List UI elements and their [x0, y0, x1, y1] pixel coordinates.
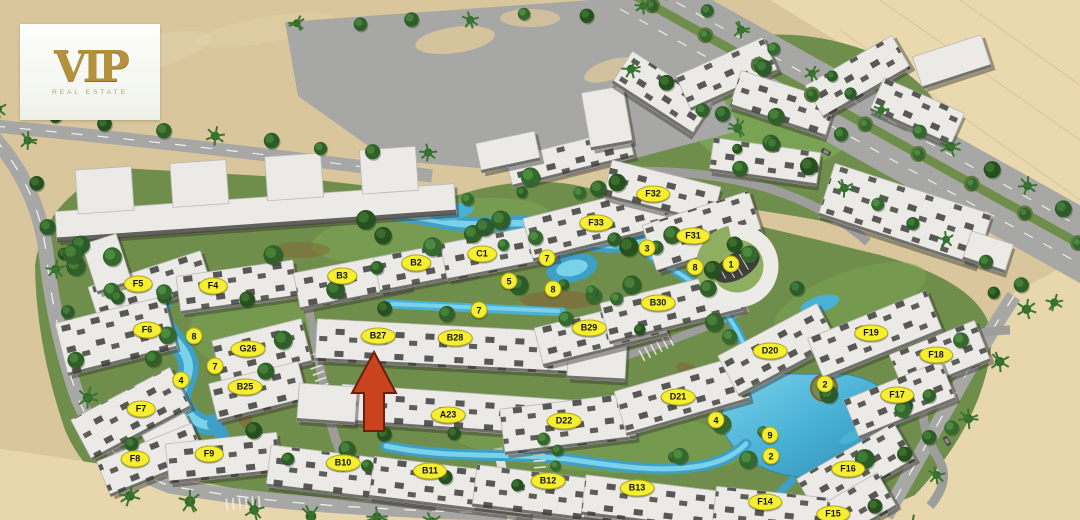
- amenity-marker-3: 3: [639, 240, 656, 257]
- amenity-marker-8: 8: [186, 328, 203, 345]
- building-label-F17: F17: [880, 387, 914, 404]
- amenity-marker-7: 7: [471, 302, 488, 319]
- building-label-D22: D22: [547, 413, 582, 430]
- building-label-F18: F18: [919, 347, 953, 364]
- building-label-F4: F4: [199, 278, 228, 295]
- building-label-B29: B29: [572, 320, 607, 337]
- vip-logo-monogram: VIP: [54, 48, 126, 86]
- building-label-B25: B25: [228, 379, 263, 396]
- amenity-marker-7: 7: [207, 358, 224, 375]
- building-label-F19: F19: [854, 325, 888, 342]
- building-label-F16: F16: [831, 461, 865, 478]
- building-label-F5: F5: [124, 276, 153, 293]
- developer-logo: VIP REAL ESTATE: [20, 24, 160, 120]
- building-label-B13: B13: [620, 480, 655, 497]
- amenity-marker-4: 4: [708, 412, 725, 429]
- building-label-B28: B28: [438, 330, 473, 347]
- amenity-marker-9: 9: [762, 427, 779, 444]
- building-label-A23: A23: [431, 407, 466, 424]
- building-label-D20: D20: [753, 343, 788, 360]
- building-label-B12: B12: [531, 473, 566, 490]
- building-label-B27: B27: [361, 328, 396, 345]
- amenity-marker-1: 1: [723, 256, 740, 273]
- amenity-marker-2: 2: [763, 448, 780, 465]
- master-plan: F5F4F6G26B25F7F8F9B3B2C1B27B28A23B10B11B…: [0, 0, 1080, 520]
- amenity-marker-2: 2: [817, 376, 834, 393]
- building-label-F32: F32: [636, 186, 670, 203]
- building-label-F7: F7: [127, 401, 156, 418]
- building-label-F6: F6: [133, 322, 162, 339]
- building-label-B11: B11: [413, 463, 447, 480]
- map-labels: F5F4F6G26B25F7F8F9B3B2C1B27B28A23B10B11B…: [0, 0, 1080, 520]
- building-label-B10: B10: [326, 455, 361, 472]
- building-label-F8: F8: [121, 451, 150, 468]
- building-label-F14: F14: [748, 494, 782, 511]
- amenity-marker-4: 4: [173, 372, 190, 389]
- building-label-F33: F33: [579, 215, 613, 232]
- building-label-B30: B30: [641, 295, 676, 312]
- building-label-C1: C1: [467, 246, 497, 263]
- amenity-marker-5: 5: [501, 273, 518, 290]
- amenity-marker-7: 7: [539, 250, 556, 267]
- building-label-G26: G26: [230, 341, 265, 358]
- building-label-F31: F31: [676, 228, 710, 245]
- amenity-marker-8: 8: [687, 259, 704, 276]
- vip-logo-subtitle: REAL ESTATE: [52, 89, 128, 96]
- building-label-F15: F15: [816, 506, 850, 520]
- amenity-marker-8: 8: [545, 281, 562, 298]
- building-label-B2: B2: [401, 255, 431, 272]
- building-label-F9: F9: [195, 446, 224, 463]
- building-label-D21: D21: [661, 389, 696, 406]
- building-label-B3: B3: [327, 268, 357, 285]
